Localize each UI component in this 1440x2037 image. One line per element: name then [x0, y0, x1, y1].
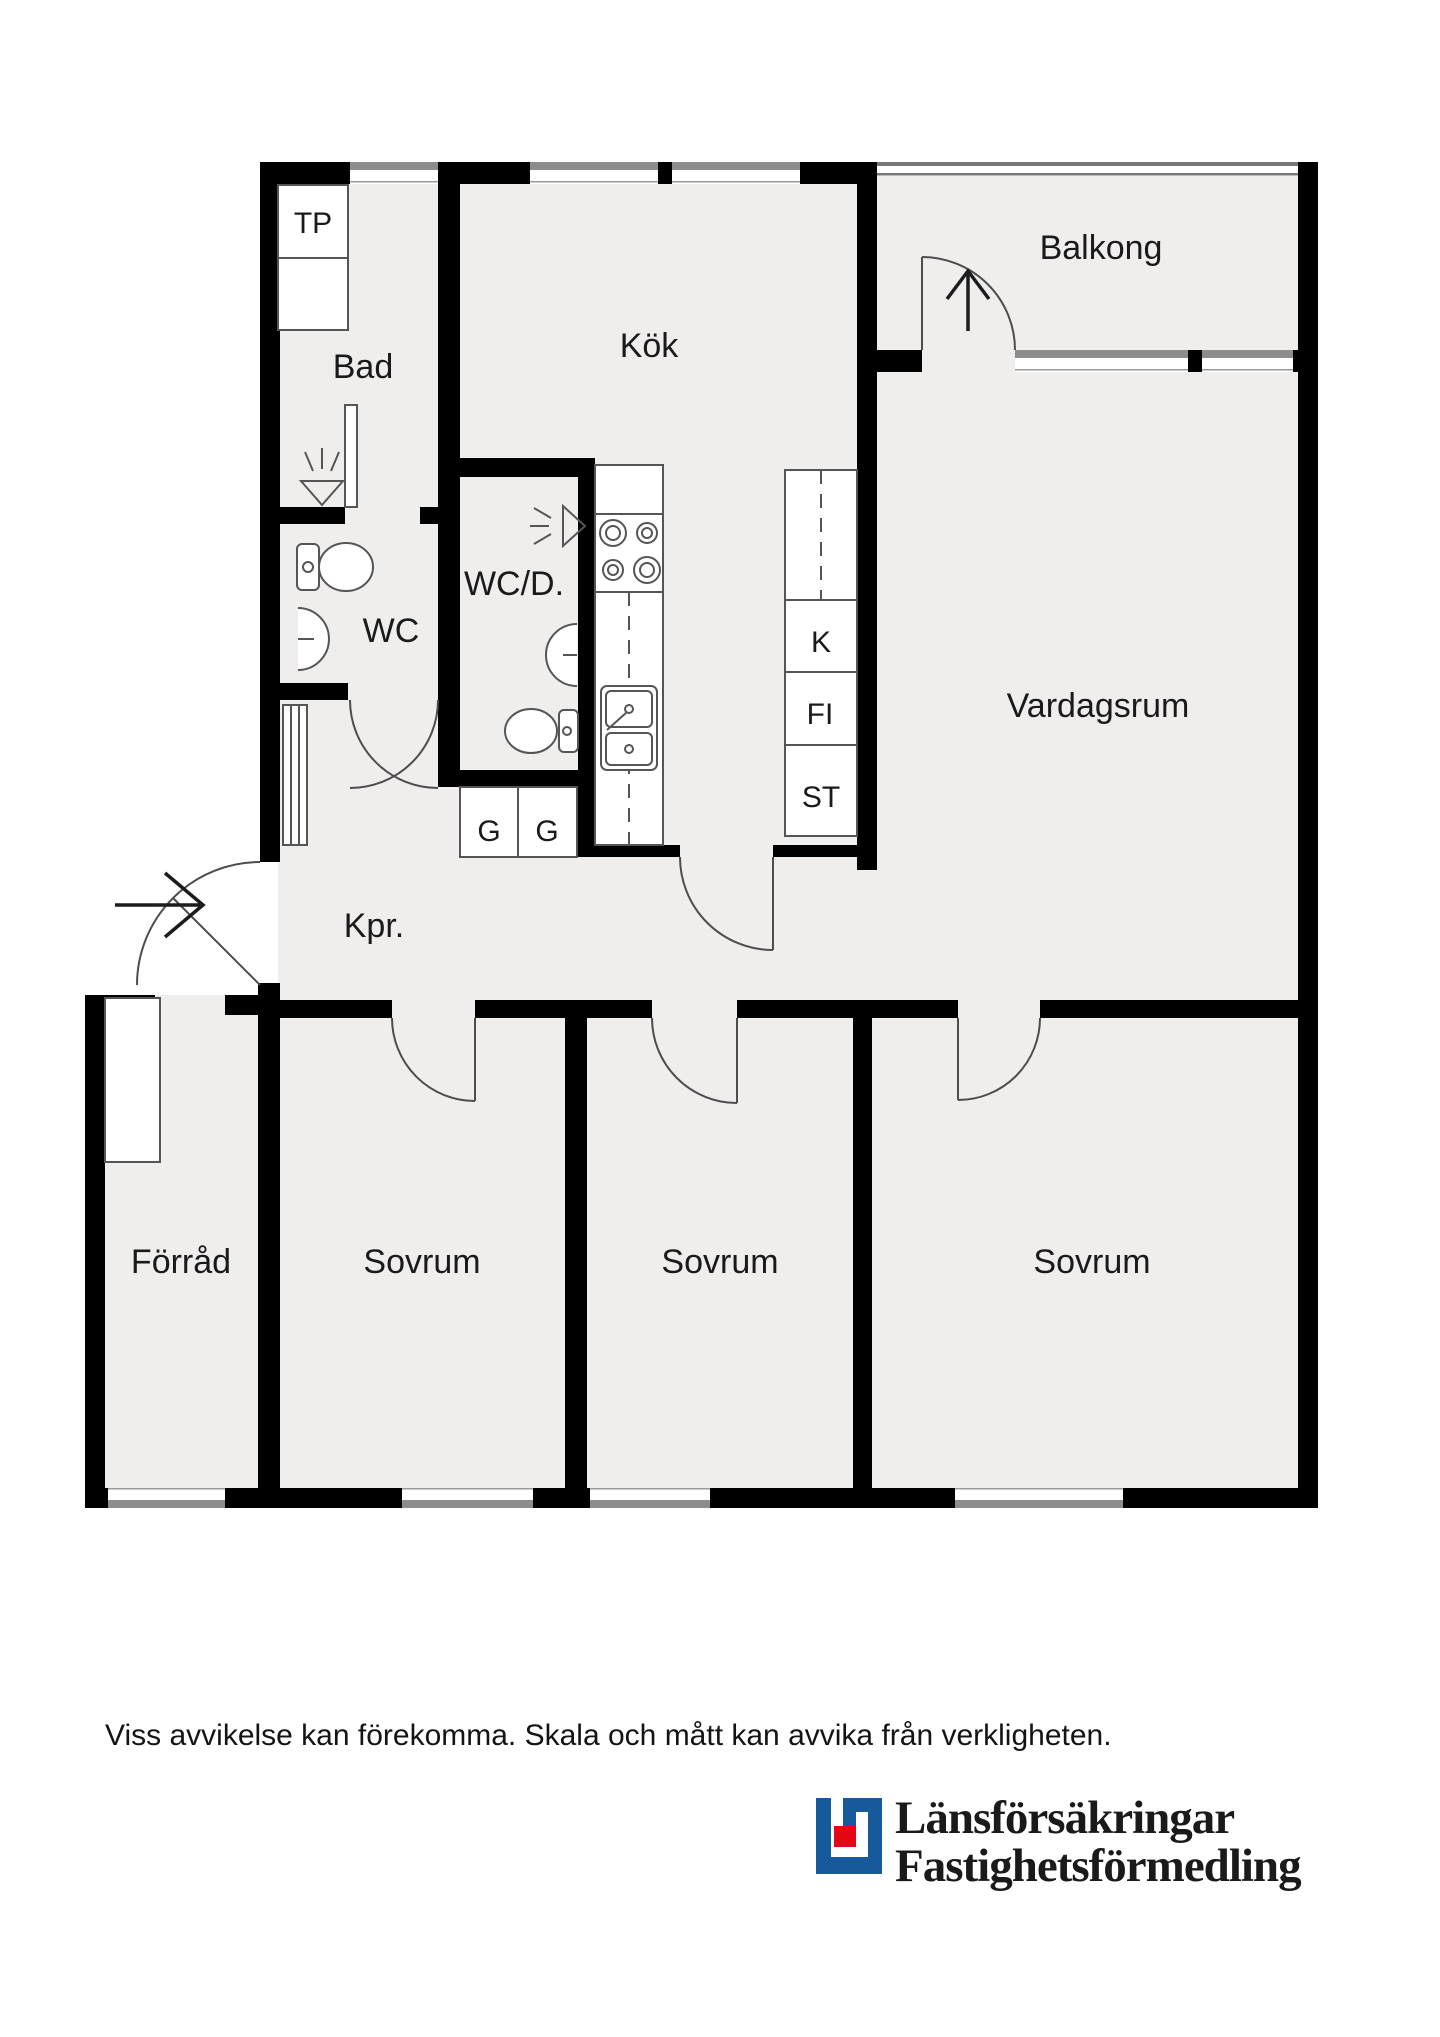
- label-vardagsrum: Vardagsrum: [1007, 687, 1190, 725]
- toilet-icon-wcd: [505, 709, 578, 753]
- label-k: K: [811, 626, 831, 659]
- label-fi: FI: [807, 698, 834, 731]
- label-wcd: WC/D.: [464, 565, 564, 603]
- label-sovrum-2: Sovrum: [661, 1243, 778, 1281]
- logo-line-1: Länsförsäkringar: [895, 1792, 1234, 1844]
- entry-door: [137, 862, 260, 985]
- window-bad: [350, 162, 438, 184]
- window-kok-1: [530, 162, 658, 184]
- window-sovrum-2: [590, 1488, 710, 1508]
- disclaimer-text: Viss avvikelse kan förekomma. Skala och …: [105, 1719, 1112, 1752]
- label-wc: WC: [363, 612, 420, 650]
- label-sovrum-3: Sovrum: [1033, 1243, 1150, 1281]
- balcony-railing: [877, 162, 1298, 176]
- window-sovrum-3: [955, 1488, 1123, 1508]
- radiator-icon: [283, 705, 307, 845]
- label-balkong: Balkong: [1040, 229, 1163, 267]
- lansforsakringar-logo-icon: [816, 1798, 882, 1874]
- label-bad: Bad: [333, 348, 394, 386]
- label-tp: TP: [294, 207, 332, 240]
- label-sovrum-1: Sovrum: [363, 1243, 480, 1281]
- label-kok: Kök: [620, 327, 680, 365]
- label-forrad: Förråd: [131, 1243, 231, 1281]
- window-vardagsrum-1: [1015, 350, 1188, 372]
- label-kpr: Kpr.: [344, 907, 404, 945]
- window-forrad: [108, 1488, 225, 1508]
- floorplan-page: TP Bad Kök Balkong WC WC/D. K FI ST Vard…: [0, 0, 1440, 2037]
- brand-logo: Länsförsäkringar Fastighetsförmedling: [816, 1792, 1302, 1892]
- kitchen-sink-icon: [601, 686, 657, 770]
- window-kok-2: [672, 162, 800, 184]
- label-st: ST: [802, 781, 840, 814]
- label-g2: G: [535, 815, 558, 848]
- entry-arrow-icon: [115, 873, 203, 937]
- toilet-icon-wc: [297, 543, 373, 591]
- forrad-shelf: [105, 998, 160, 1162]
- window-sovrum-1: [402, 1488, 533, 1508]
- window-vardagsrum-2: [1202, 350, 1293, 372]
- label-g1: G: [477, 815, 500, 848]
- logo-line-2: Fastighetsförmedling: [895, 1840, 1302, 1892]
